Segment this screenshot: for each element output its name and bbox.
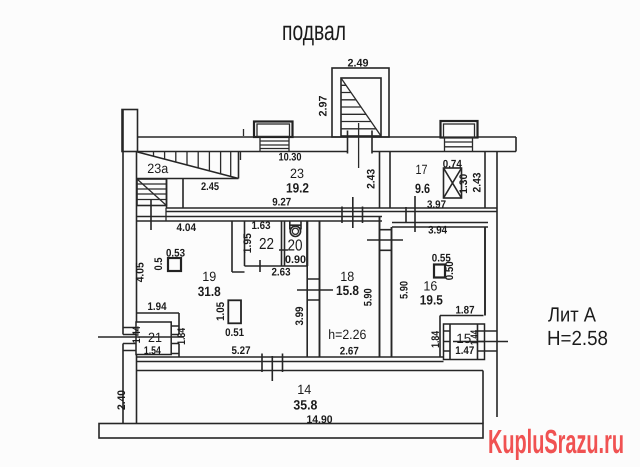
svg-text:16: 16 [423, 279, 437, 294]
svg-text:4.05: 4.05 [134, 262, 146, 282]
svg-text:19: 19 [202, 269, 216, 284]
svg-text:3.94: 3.94 [428, 225, 448, 237]
svg-text:0.90: 0.90 [285, 254, 306, 266]
svg-text:подвал: подвал [282, 16, 346, 46]
svg-text:23: 23 [290, 166, 304, 181]
svg-text:5.90: 5.90 [398, 281, 410, 299]
svg-text:20: 20 [288, 238, 303, 255]
svg-text:5.27: 5.27 [232, 345, 251, 357]
svg-text:1.94: 1.94 [148, 301, 168, 313]
svg-text:35.8: 35.8 [293, 398, 317, 413]
svg-text:5.90: 5.90 [362, 288, 374, 306]
svg-text:9.6: 9.6 [415, 181, 430, 196]
svg-text:2.97: 2.97 [318, 96, 330, 117]
svg-text:4.04: 4.04 [177, 222, 197, 234]
svg-text:19.5: 19.5 [420, 293, 443, 308]
svg-text:1.54: 1.54 [144, 345, 162, 357]
svg-text:2.49: 2.49 [348, 58, 369, 70]
svg-text:10.30: 10.30 [279, 151, 302, 163]
svg-text:3.97: 3.97 [427, 199, 446, 211]
svg-text:2.43: 2.43 [365, 169, 377, 189]
svg-text:2.67: 2.67 [340, 346, 359, 358]
svg-text:19.2: 19.2 [286, 180, 309, 195]
svg-text:21: 21 [148, 330, 162, 345]
svg-text:23а: 23а [147, 161, 168, 176]
svg-text:1.63: 1.63 [252, 220, 271, 232]
svg-text:14: 14 [297, 382, 311, 397]
svg-text:17: 17 [416, 162, 428, 177]
svg-text:1.95: 1.95 [242, 233, 254, 253]
svg-text:18: 18 [340, 269, 354, 284]
svg-text:15.8: 15.8 [336, 283, 359, 298]
svg-text:1.44: 1.44 [469, 329, 481, 345]
svg-text:2.45: 2.45 [201, 181, 219, 193]
svg-text:Лит А: Лит А [548, 304, 596, 327]
svg-text:0.5: 0.5 [153, 258, 165, 271]
svg-text:22: 22 [259, 236, 274, 253]
svg-text:KupluSrazu.ru: KupluSrazu.ru [488, 424, 624, 461]
svg-text:2.43: 2.43 [472, 173, 484, 193]
svg-text:9.27: 9.27 [272, 197, 291, 209]
svg-text:1.44: 1.44 [131, 326, 143, 344]
svg-text:1.84: 1.84 [176, 327, 188, 345]
svg-text:1.84: 1.84 [430, 330, 442, 348]
svg-text:2.63: 2.63 [272, 267, 291, 279]
svg-text:1.05: 1.05 [215, 302, 227, 321]
svg-text:1.47: 1.47 [455, 345, 474, 357]
svg-text:3.99: 3.99 [294, 307, 306, 326]
svg-text:2.40: 2.40 [116, 390, 128, 410]
svg-text:h=2.26: h=2.26 [328, 327, 366, 342]
svg-text:1.30: 1.30 [458, 174, 470, 194]
svg-text:0.51: 0.51 [225, 327, 244, 339]
svg-text:Н=2.58: Н=2.58 [547, 327, 608, 350]
svg-text:31.8: 31.8 [198, 284, 221, 299]
